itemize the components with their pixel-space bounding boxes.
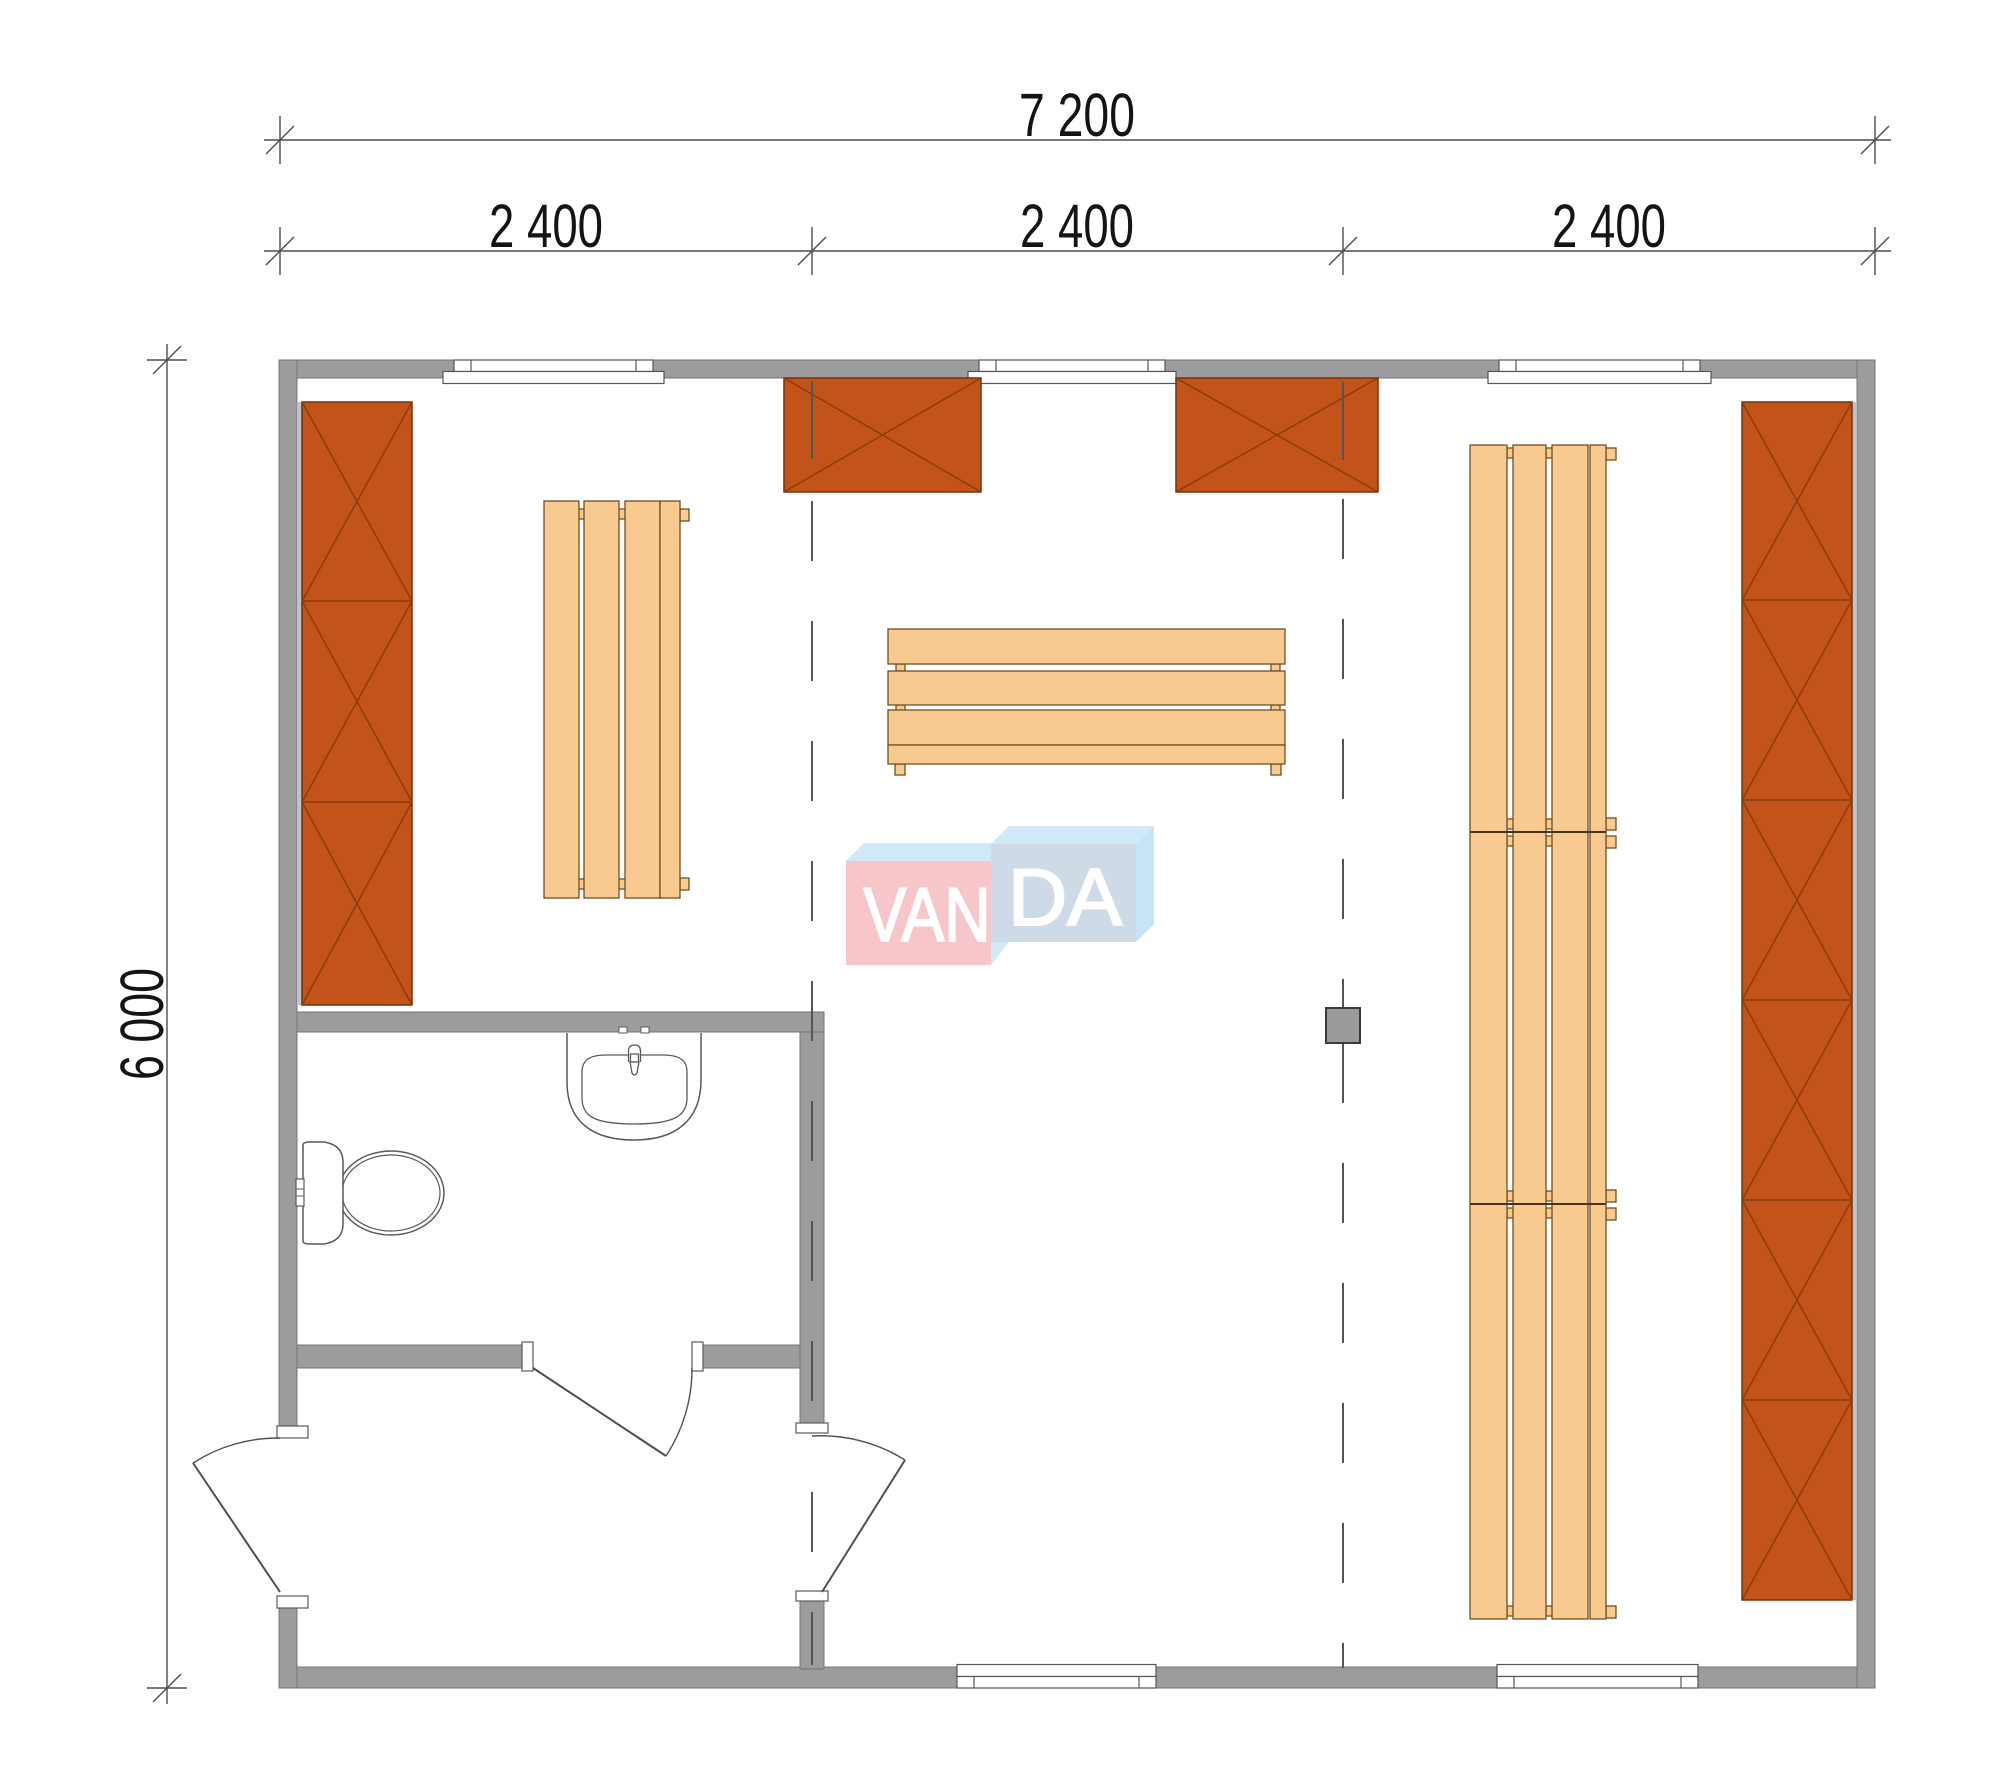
svg-text:7 200: 7 200	[1019, 81, 1135, 149]
svg-text:6 000: 6 000	[108, 968, 176, 1080]
svg-text:DA: DA	[1008, 853, 1122, 943]
svg-text:2 400: 2 400	[1552, 192, 1666, 260]
svg-text:VAN: VAN	[864, 873, 991, 958]
svg-text:2 400: 2 400	[1020, 192, 1134, 260]
svg-text:2 400: 2 400	[489, 192, 603, 260]
